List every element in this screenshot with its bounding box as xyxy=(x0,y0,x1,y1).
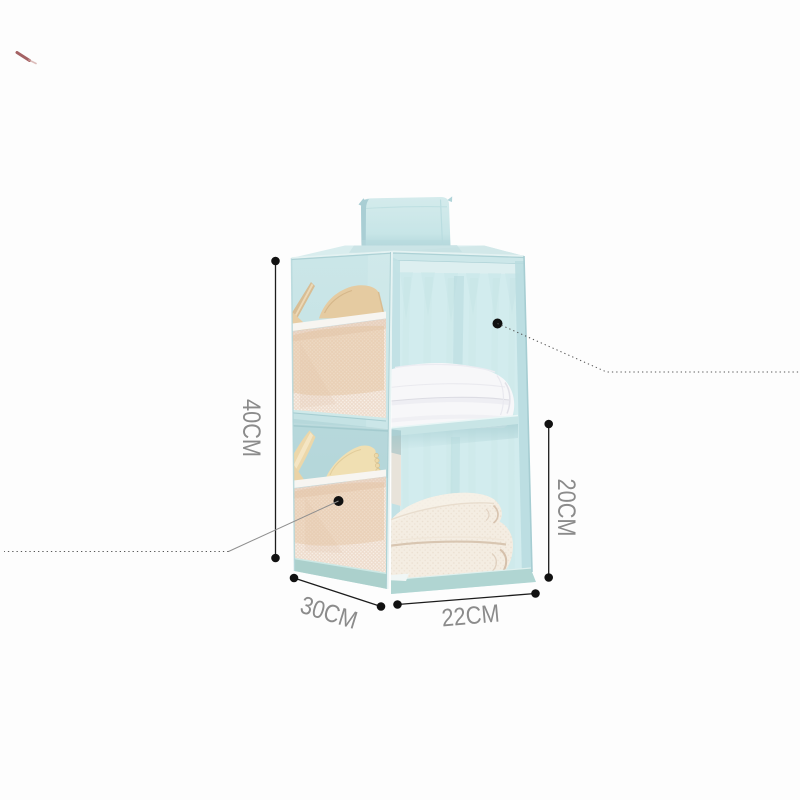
svg-text:22CM: 22CM xyxy=(440,599,500,632)
svg-text:20CM: 20CM xyxy=(553,478,581,536)
svg-text:40CM: 40CM xyxy=(238,399,266,457)
